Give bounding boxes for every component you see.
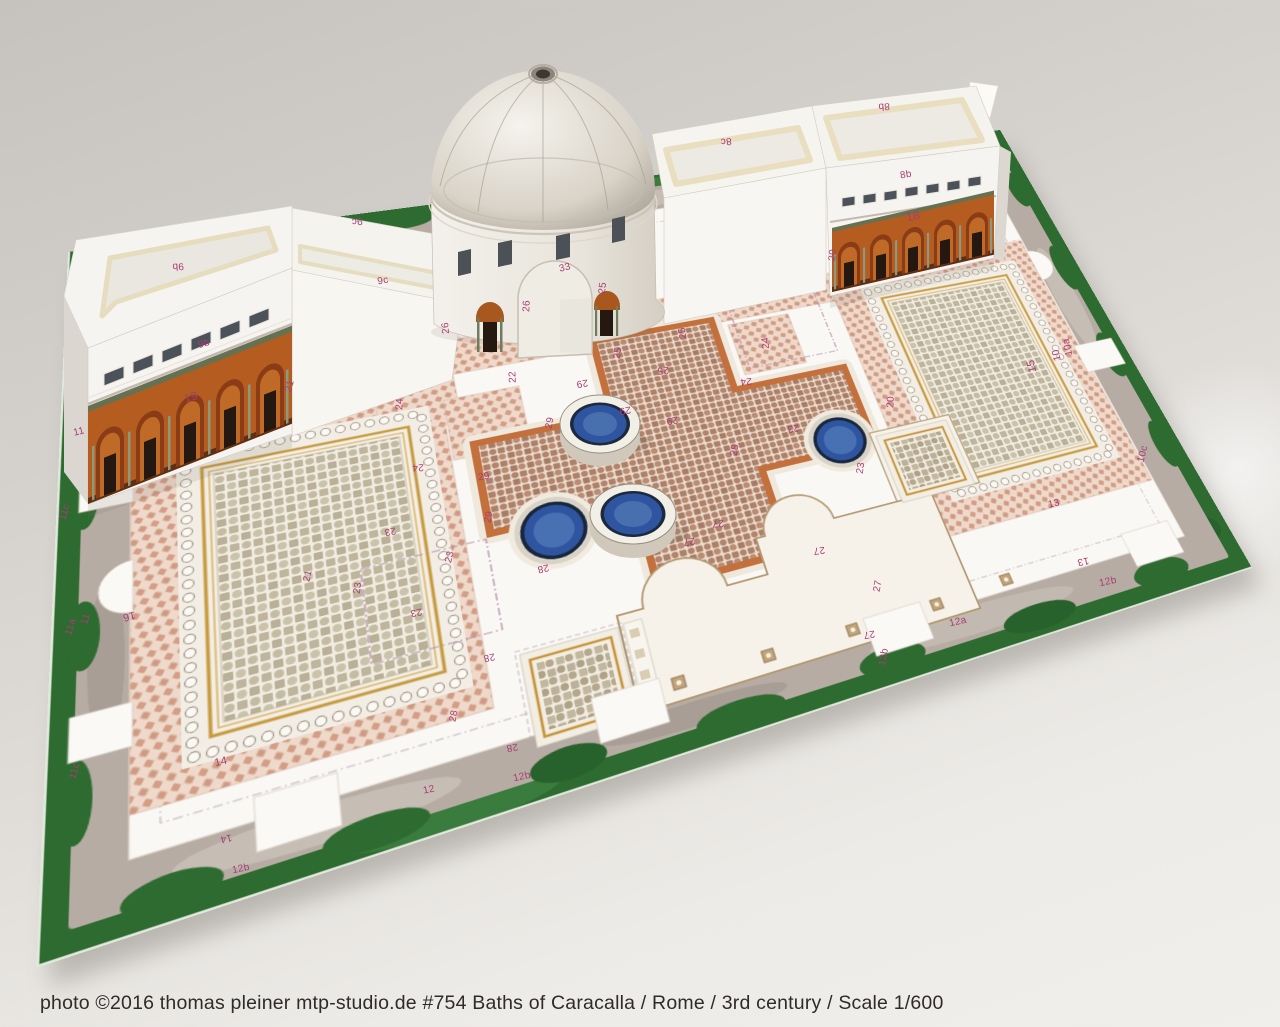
right-hall-8c (652, 106, 826, 324)
photo-caption: photo ©2016 thomas pleiner mtp-studio.de… (40, 992, 944, 1015)
raised-pool-center (590, 484, 688, 558)
rotunda-dome-building (429, 65, 665, 358)
dome-oculus (536, 70, 550, 79)
buildings-artwork (0, 0, 1280, 1027)
raised-pool-north (560, 395, 651, 466)
